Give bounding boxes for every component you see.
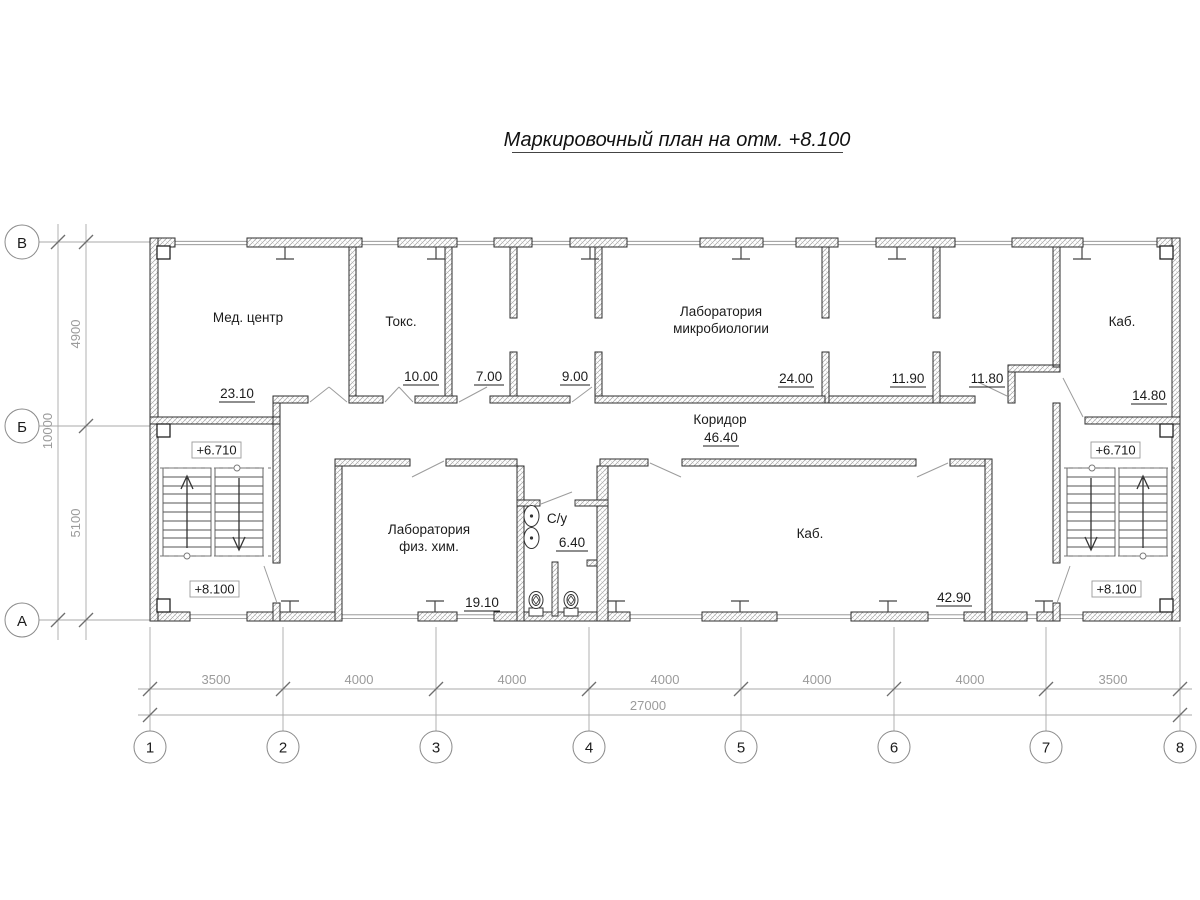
corridor-bottom-wall [335, 459, 988, 466]
room-area-kab-top-right: 14.80 [1132, 388, 1166, 403]
elevation-lower-right: +8.100 [1096, 582, 1136, 597]
elevation-upper-left: +6.710 [196, 443, 236, 458]
room-area-su: 6.40 [559, 535, 585, 550]
dimension-ticks [51, 235, 1187, 722]
top-wall-piers [150, 238, 1180, 247]
dim-4-5: 4000 [651, 672, 680, 687]
room-area-9: 9.00 [562, 369, 588, 384]
room-area-toks: 10.00 [404, 369, 438, 384]
axis-a: А [17, 613, 27, 630]
sink [524, 528, 539, 549]
axis-3: 3 [432, 740, 440, 757]
room-name-kab-center: Каб. [797, 526, 824, 541]
stair-arrow-down [1085, 478, 1097, 550]
floor-plan-drawing: Маркировочный план на отм. +8.100 [0, 0, 1200, 900]
axis-1: 1 [146, 740, 154, 757]
room-name-corridor: Коридор [693, 412, 746, 427]
dim-5-6: 4000 [803, 672, 832, 687]
room-area-1190: 11.90 [892, 371, 925, 386]
axis-5: 5 [737, 740, 745, 757]
axis-b: Б [17, 419, 27, 436]
axis-6: 6 [890, 740, 898, 757]
elevation-upper-right: +6.710 [1095, 443, 1135, 458]
corner-columns [157, 246, 1173, 612]
toilet [529, 592, 543, 617]
axis-4: 4 [585, 740, 593, 757]
room-area-7: 7.00 [476, 369, 502, 384]
dim-3-4: 4000 [498, 672, 527, 687]
sink [524, 506, 539, 527]
axis-2: 2 [279, 740, 287, 757]
dim-1-2: 3500 [202, 672, 231, 687]
room-area-1180: 11.80 [971, 371, 1004, 386]
dim-b-a: 5100 [68, 509, 83, 538]
stairwell-walls [150, 403, 1180, 621]
corridor-top-wall [273, 396, 975, 403]
room-area-phys-chem: 19.10 [465, 595, 499, 610]
dim-6-7: 4000 [956, 672, 985, 687]
room-name-med-center: Мед. центр [213, 310, 283, 325]
stairs-left [160, 465, 271, 559]
room-area-kab-center: 42.90 [937, 590, 971, 605]
dim-7-8: 3500 [1099, 672, 1128, 687]
stair-arrow-down [233, 478, 245, 550]
axis-7: 7 [1042, 740, 1050, 757]
room-name-phys-chem-1: Лаборатория [388, 522, 470, 537]
axis-8: 8 [1176, 740, 1184, 757]
drawing-title: Маркировочный план на отм. +8.100 [504, 129, 851, 153]
room-area-med-center: 23.10 [220, 386, 254, 401]
door-swings [264, 378, 1083, 603]
vent-marks [276, 247, 1091, 612]
axis-v: В [17, 235, 27, 252]
dim-total-horizontal: 27000 [630, 698, 666, 713]
room-name-kab-top-right: Каб. [1109, 314, 1136, 329]
toilet [564, 592, 578, 617]
bottom-wall-piers [150, 612, 1180, 621]
drawing-sheet: Маркировочный план на отм. +8.100 [0, 0, 1200, 900]
window-glazing [152, 241, 1178, 618]
room-name-micro-lab-1: Лаборатория [680, 304, 762, 319]
side-walls [150, 238, 1180, 621]
dim-total-vertical: 10000 [40, 413, 55, 449]
room-area-corridor: 46.40 [704, 430, 738, 445]
dim-v-b: 4900 [68, 320, 83, 349]
exterior-walls [150, 238, 1180, 621]
stairs-right [1064, 465, 1175, 559]
elevation-lower-left: +8.100 [194, 582, 234, 597]
room-name-phys-chem-2: физ. хим. [399, 539, 459, 554]
axis-grid-lines [39, 224, 1192, 731]
room-name-su: С/у [547, 511, 568, 526]
room-name-toks: Токс. [385, 314, 416, 329]
elevation-marks: +6.710 +8.100 +6.710 +8.100 [190, 442, 1141, 597]
dim-2-3: 4000 [345, 672, 374, 687]
plan-title: Маркировочный план на отм. +8.100 [504, 129, 851, 151]
interior-walls [150, 247, 1180, 621]
room-area-micro-lab: 24.00 [779, 371, 813, 386]
room-name-micro-lab-2: микробиологии [673, 321, 769, 336]
